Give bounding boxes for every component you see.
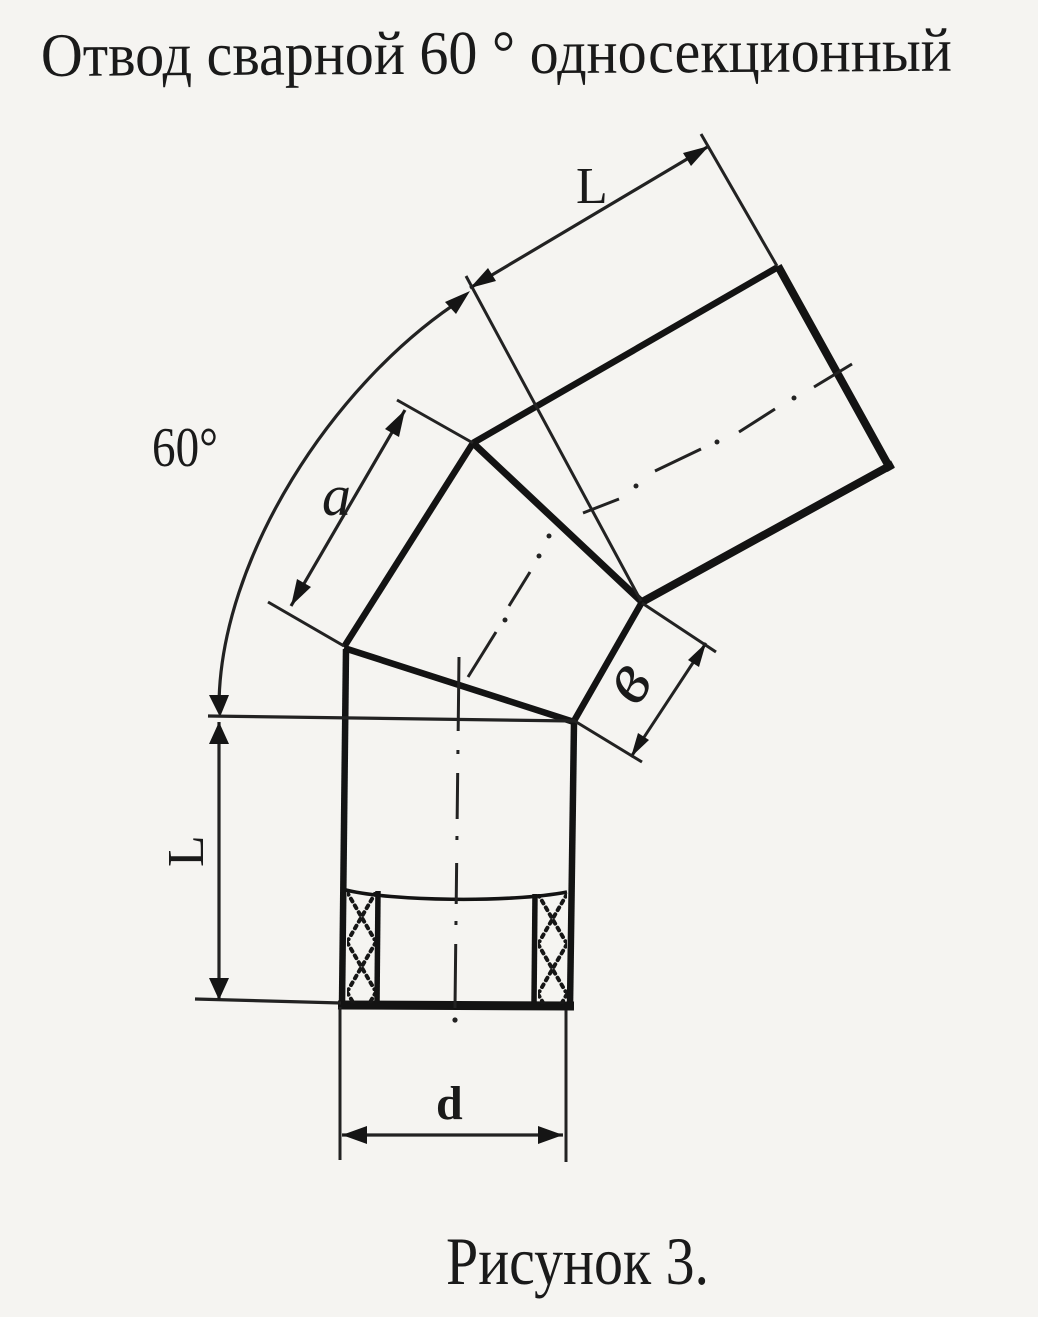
svg-text:d: d: [436, 1077, 463, 1130]
svg-text:a: a: [322, 463, 351, 528]
svg-text:Рисунок 3.: Рисунок 3.: [446, 1223, 709, 1299]
svg-text:60°: 60°: [152, 417, 218, 479]
svg-text:Отвод сварной 60 ° односекцион: Отвод сварной 60 ° односекционный: [41, 17, 952, 90]
svg-text:в: в: [582, 646, 668, 718]
svg-text:L: L: [576, 158, 608, 215]
svg-text:L: L: [158, 835, 215, 867]
